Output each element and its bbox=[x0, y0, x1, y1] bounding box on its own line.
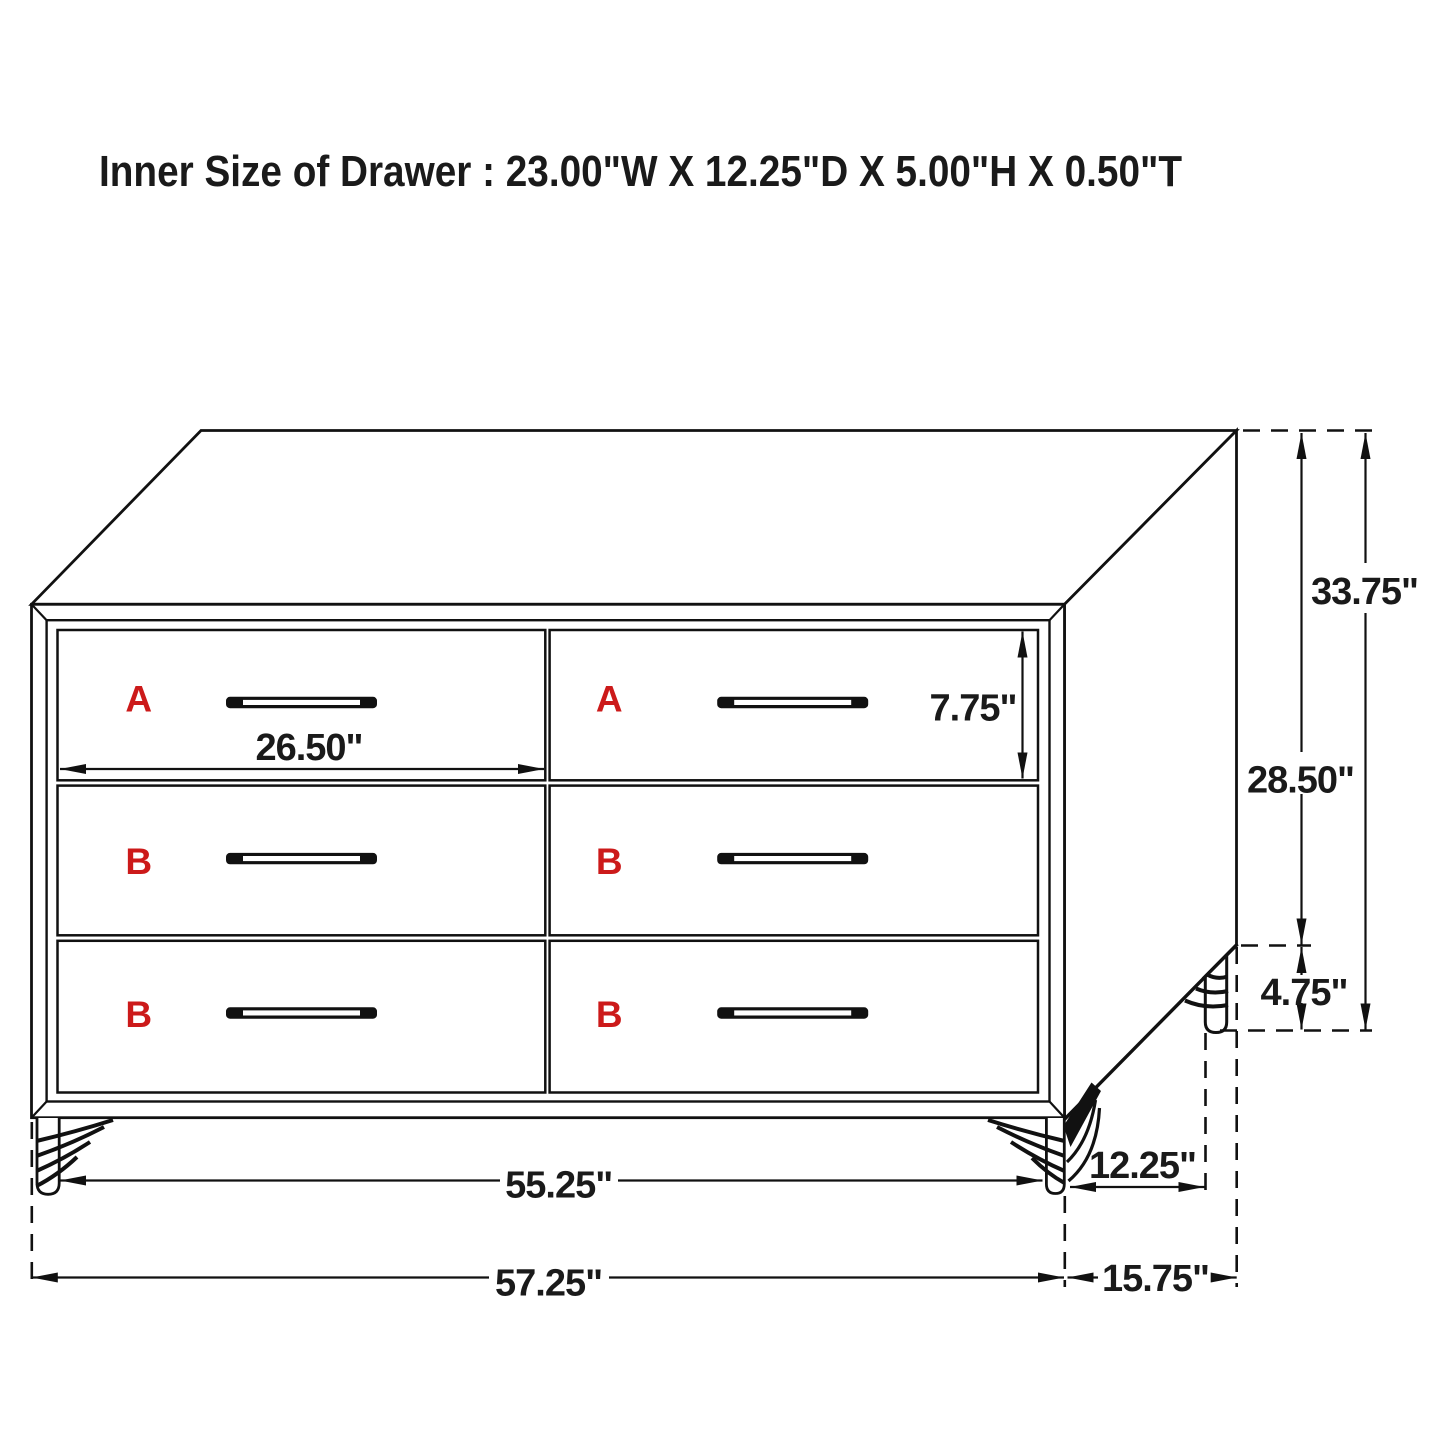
svg-text:26.50": 26.50" bbox=[255, 727, 362, 769]
svg-text:A: A bbox=[596, 679, 623, 720]
svg-text:B: B bbox=[596, 994, 623, 1035]
svg-text:B: B bbox=[596, 841, 623, 882]
svg-text:55.25": 55.25" bbox=[505, 1165, 612, 1207]
svg-text:15.75": 15.75" bbox=[1102, 1258, 1209, 1300]
svg-text:B: B bbox=[125, 994, 152, 1035]
svg-text:12.25": 12.25" bbox=[1089, 1145, 1196, 1187]
svg-text:28.50": 28.50" bbox=[1247, 760, 1354, 802]
svg-text:4.75": 4.75" bbox=[1261, 972, 1348, 1014]
svg-text:57.25": 57.25" bbox=[495, 1263, 602, 1305]
svg-text:B: B bbox=[125, 841, 152, 882]
svg-text:A: A bbox=[125, 679, 152, 720]
svg-text:7.75": 7.75" bbox=[930, 688, 1017, 730]
svg-text:33.75": 33.75" bbox=[1311, 571, 1418, 613]
svg-text:Inner Size of Drawer : 23.00"W: Inner Size of Drawer : 23.00"W X 12.25"D… bbox=[99, 147, 1182, 196]
